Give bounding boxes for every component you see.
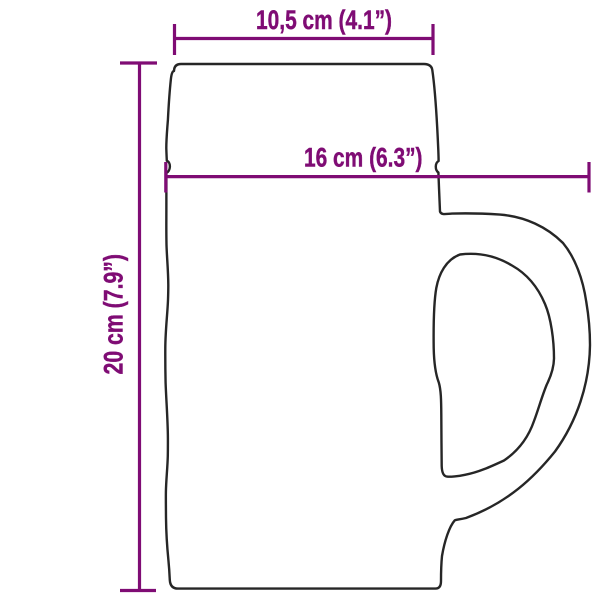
svg-text:10,5 cm (4.1”): 10,5 cm (4.1”) bbox=[256, 5, 392, 35]
svg-text:16 cm (6.3”): 16 cm (6.3”) bbox=[304, 143, 423, 173]
svg-text:20 cm (7.9”): 20 cm (7.9”) bbox=[99, 254, 129, 375]
